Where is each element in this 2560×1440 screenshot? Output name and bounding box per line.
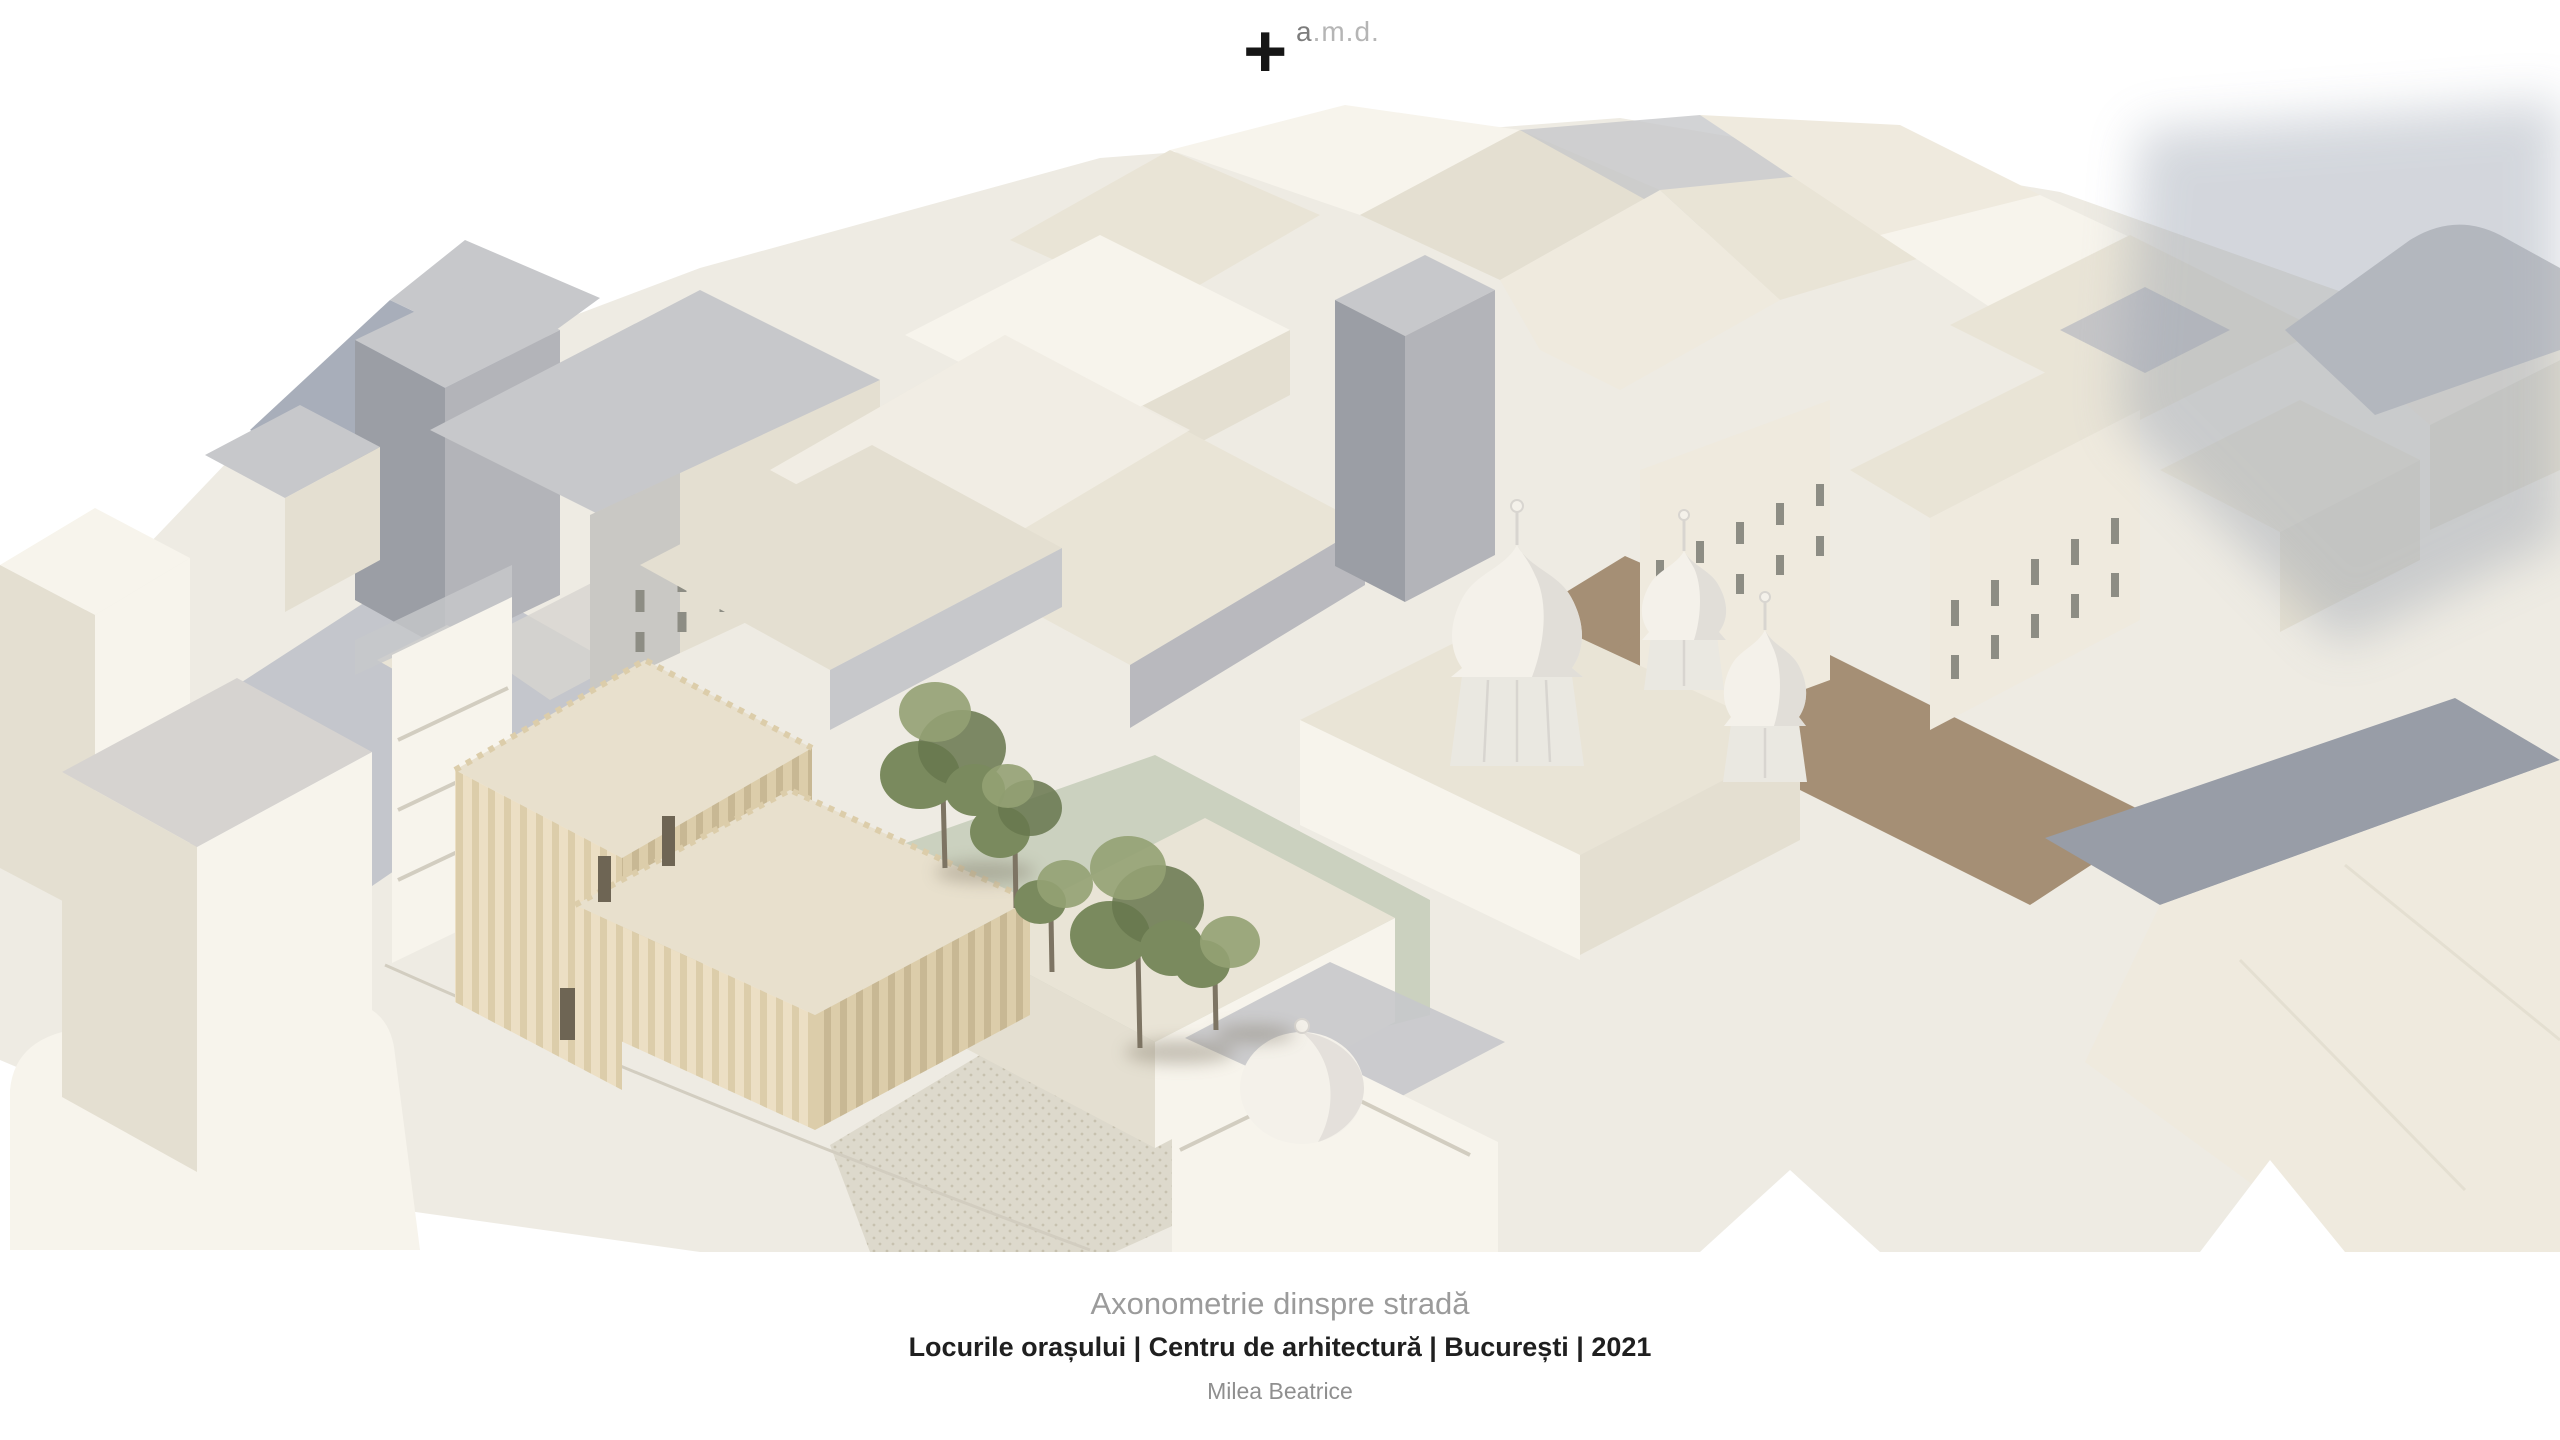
rotunda-finial <box>1295 1019 1309 1033</box>
window-slot-2 <box>662 816 675 866</box>
gray-slab-front <box>1405 290 1495 602</box>
finial-2 <box>1679 510 1689 520</box>
render-title: Axonometrie dinspre stradă <box>0 1286 2560 1322</box>
finial-1 <box>1511 500 1523 512</box>
window-slot-3 <box>560 988 575 1040</box>
presentation-board: + a.m.d. <box>0 0 2560 1440</box>
project-subtitle: Locurile orașului | Centru de arhitectur… <box>0 1332 2560 1363</box>
axonometric-render <box>0 0 2560 1440</box>
window-slot-1 <box>598 856 611 902</box>
author-name: Milea Beatrice <box>0 1378 2560 1405</box>
gray-slab-side <box>1335 300 1405 602</box>
finial-3 <box>1760 592 1770 602</box>
